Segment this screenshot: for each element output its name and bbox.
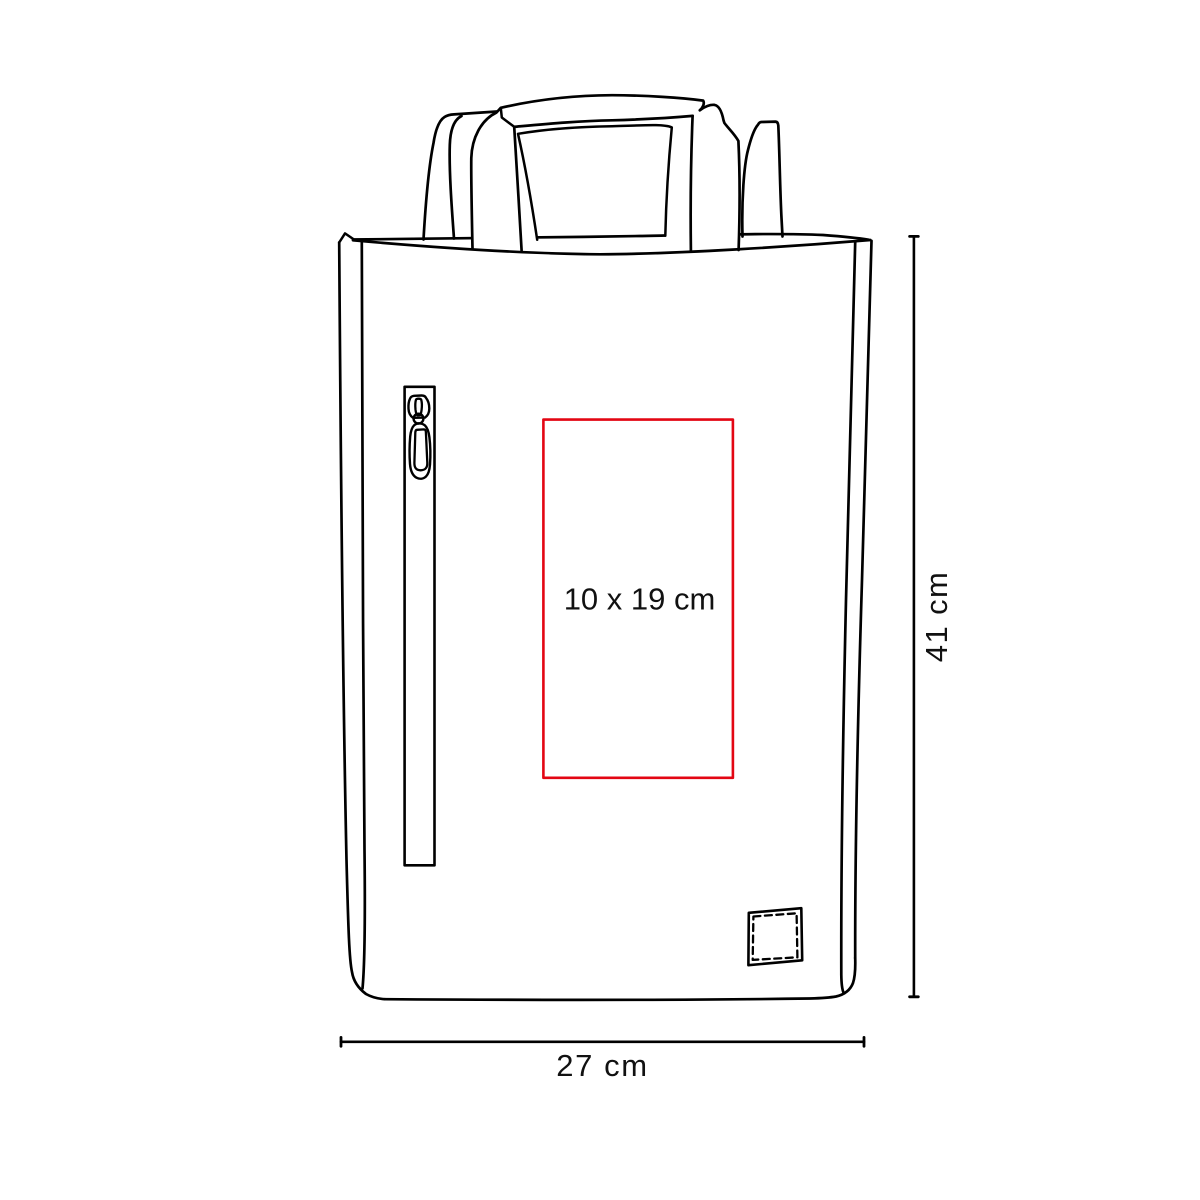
svg-text:27 cm: 27 cm (556, 1048, 648, 1083)
svg-text:10 x 19 cm: 10 x 19 cm (564, 582, 716, 617)
svg-text:41 cm: 41 cm (919, 571, 954, 662)
